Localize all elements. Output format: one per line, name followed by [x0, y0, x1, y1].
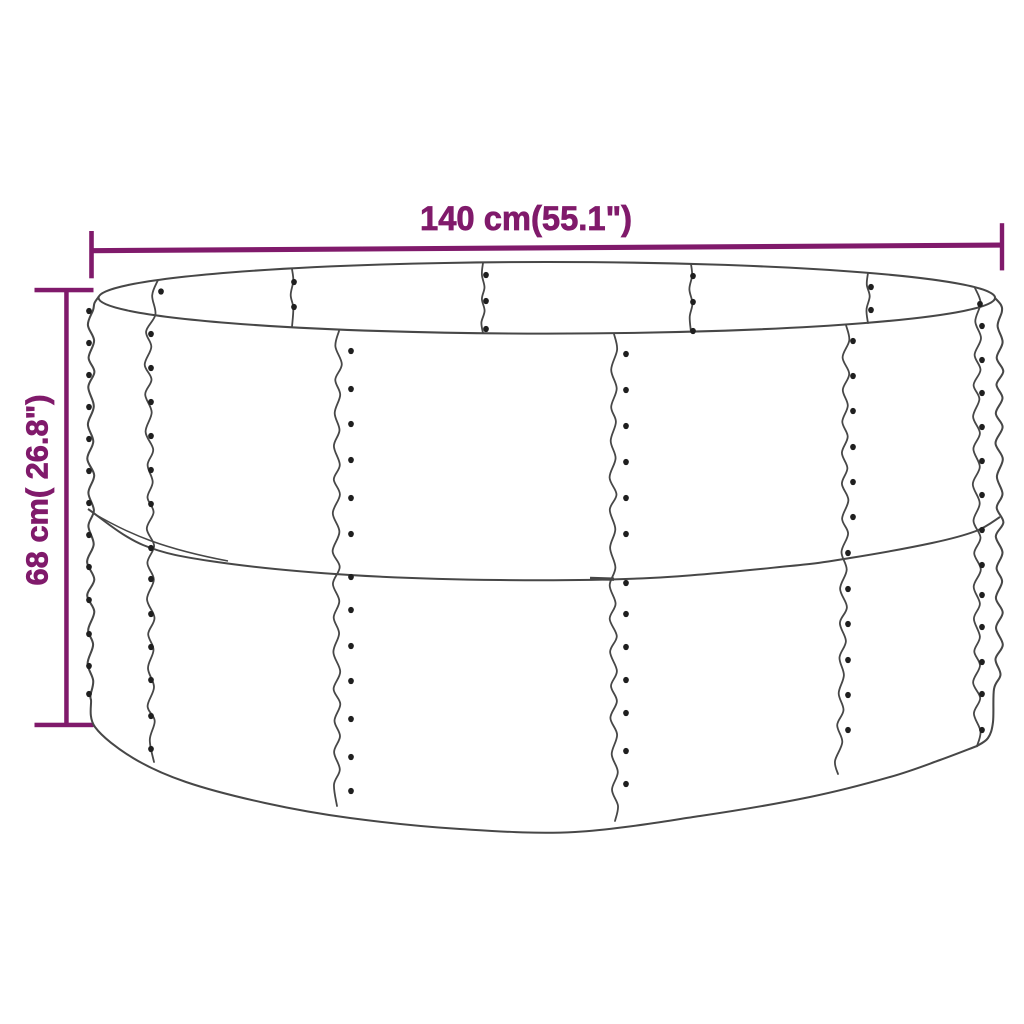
svg-text:140 cm(55.1"): 140 cm(55.1") [420, 200, 632, 238]
svg-text:68 cm( 26.8"): 68 cm( 26.8") [20, 395, 55, 586]
